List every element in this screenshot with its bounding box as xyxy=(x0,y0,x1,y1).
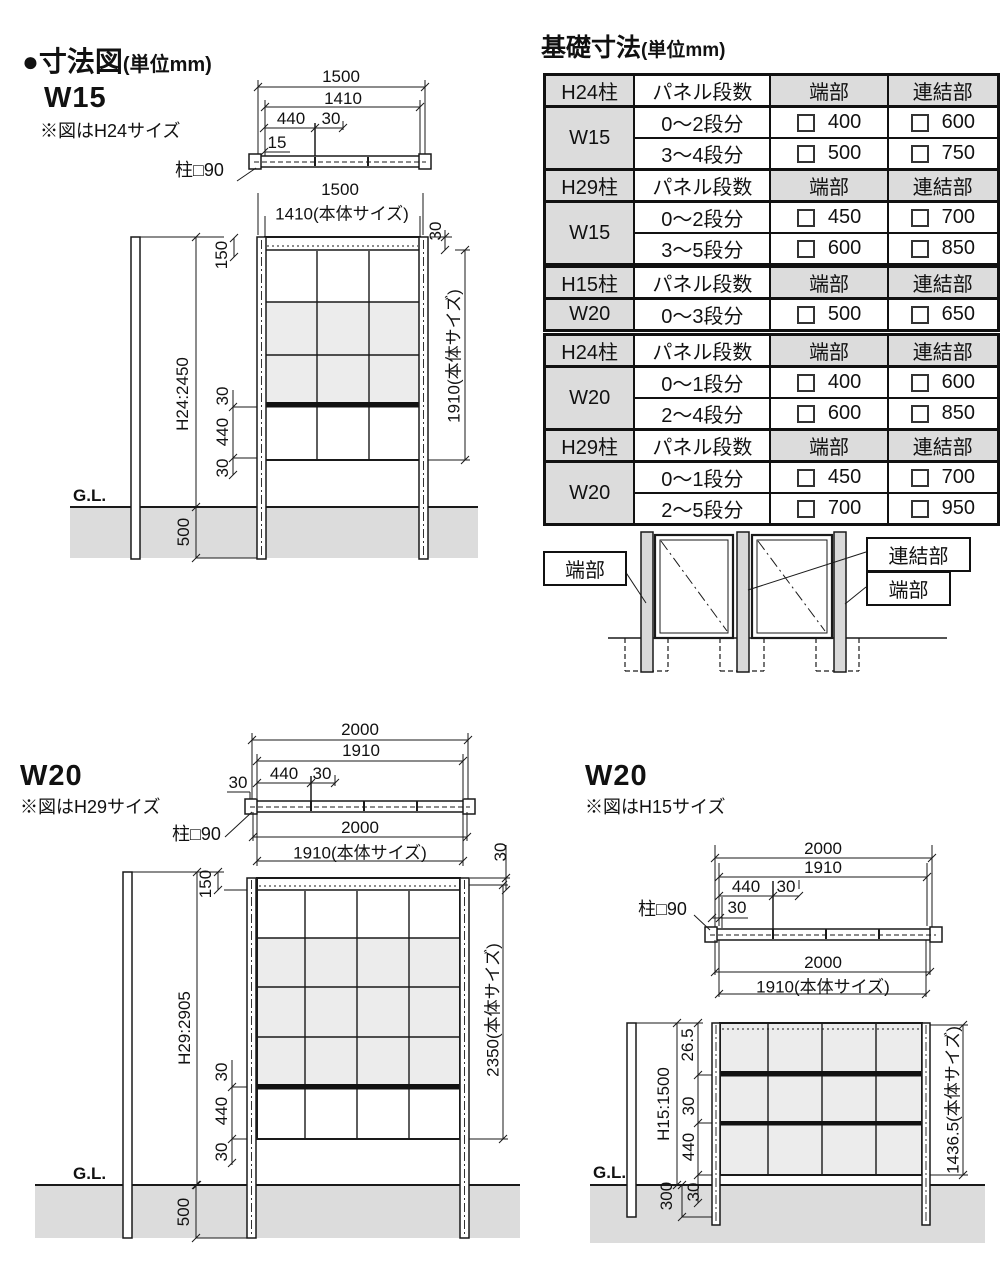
table-row: W20 0〜1段分 450 700 xyxy=(545,462,999,494)
square-symbol-icon xyxy=(911,405,929,423)
dim-top-offset: 30 xyxy=(426,222,446,241)
dimension-drawing-page: ●寸法図(単位mm) W15 ※図はH24サイズ 基礎寸法(単位mm) 1500… xyxy=(0,0,1000,1278)
post-size-label: 柱□90 xyxy=(175,156,224,182)
square-symbol-icon xyxy=(797,469,815,487)
joint-cell: 750 xyxy=(888,138,999,170)
post-size-label: 柱□90 xyxy=(172,820,221,846)
dim-overall: 2000 xyxy=(804,953,842,973)
table-row: W15 0〜2段分 450 700 xyxy=(545,202,999,234)
width-cell: W20 xyxy=(545,299,635,331)
dim-body: 1910 xyxy=(804,858,842,878)
dim-embed: 500 xyxy=(174,518,194,546)
width-cell: W20 xyxy=(545,367,635,430)
dim-panel: 440 xyxy=(270,764,298,784)
dim-rail-bottom: 30 xyxy=(684,1183,704,1202)
end-cell: 450 xyxy=(770,202,887,234)
w15-elevation-linework xyxy=(70,193,478,562)
square-symbol-icon xyxy=(911,114,929,132)
square-symbol-icon xyxy=(797,145,815,163)
reference-post xyxy=(627,1023,636,1217)
dim-body-height: 1910(本体サイズ) xyxy=(440,289,465,423)
end-cell: 600 xyxy=(770,233,887,265)
dim-overall: 1500 xyxy=(322,67,360,87)
square-symbol-icon xyxy=(911,306,929,324)
dim-panel: 440 xyxy=(277,109,305,129)
w20a-name: W20 xyxy=(20,760,83,793)
joint-cell: 600 xyxy=(888,107,999,139)
dim-offset: 30 xyxy=(229,773,248,793)
dim-offset: 30 xyxy=(728,898,747,918)
w20-h29-elevation-linework xyxy=(35,868,520,1242)
table-panel-header: パネル段数 xyxy=(634,267,770,299)
table-panel-header: パネル段数 xyxy=(634,170,770,202)
square-symbol-icon xyxy=(797,374,815,392)
end-cell: 700 xyxy=(770,493,887,525)
table-joint-header: 連結部 xyxy=(888,430,999,462)
table-row: W20 0〜3段分 500 650 xyxy=(545,299,999,331)
steps-cell: 0〜1段分 xyxy=(634,367,770,399)
end-cell: 450 xyxy=(770,462,887,494)
joint-cell: 950 xyxy=(888,493,999,525)
dim-strut: 30 xyxy=(777,877,796,897)
dim-offset: 15 xyxy=(268,133,287,153)
dim-height: H15:1500 xyxy=(654,1067,674,1141)
dim-overall: 2000 xyxy=(341,818,379,838)
dim-overall: 2000 xyxy=(804,839,842,859)
dim-panel-height: 440 xyxy=(679,1133,699,1161)
joint-cell: 850 xyxy=(888,233,999,265)
dim-body-size: 1410(本体サイズ) xyxy=(275,200,409,225)
ground-fill xyxy=(35,1186,520,1238)
w20-h15-elevation-linework xyxy=(590,1019,985,1243)
legend-end-left: 端部 xyxy=(543,551,627,586)
table-panel-header: パネル段数 xyxy=(634,335,770,367)
ground-level-label: G.L. xyxy=(73,486,106,506)
steps-cell: 3〜5段分 xyxy=(634,233,770,265)
steps-cell: 2〜4段分 xyxy=(634,398,770,430)
foundation-table-h29-w20: H29柱 パネル段数 端部 連結部 W20 0〜1段分 450 700 2〜5段… xyxy=(543,428,1000,526)
end-cell: 600 xyxy=(770,398,887,430)
dim-rail-bottom: 30 xyxy=(212,1143,232,1162)
foundation-table-h29-w15: H29柱 パネル段数 端部 連結部 W15 0〜2段分 450 700 3〜5段… xyxy=(543,168,1000,266)
dim-body-size: 1910(本体サイズ) xyxy=(293,839,427,864)
legend-joint: 連結部 xyxy=(866,537,971,572)
square-symbol-icon xyxy=(911,374,929,392)
dim-top-offset: 30 xyxy=(491,843,511,862)
table-joint-header: 連結部 xyxy=(888,335,999,367)
dim-strut: 30 xyxy=(313,764,332,784)
post-size-label: 柱□90 xyxy=(638,895,687,921)
foundation-table-h15-w20: H15柱 パネル段数 端部 連結部 W20 0〜3段分 500 650 xyxy=(543,265,1000,332)
foundation-table-h24-w20: H24柱 パネル段数 端部 連結部 W20 0〜1段分 400 600 2〜4段… xyxy=(543,333,1000,431)
square-symbol-icon xyxy=(911,500,929,518)
dim-top-margin: 26.5 xyxy=(678,1028,698,1061)
w15-note: ※図はH24サイズ xyxy=(40,117,180,143)
table-end-header: 端部 xyxy=(770,75,887,107)
table-end-header: 端部 xyxy=(770,335,887,367)
table-end-header: 端部 xyxy=(770,430,887,462)
dim-overall: 1500 xyxy=(321,180,359,200)
table-row: W20 0〜1段分 400 600 xyxy=(545,367,999,399)
square-symbol-icon xyxy=(797,240,815,258)
dim-panel-height: 440 xyxy=(213,418,233,446)
ground-level-label: G.L. xyxy=(593,1163,626,1183)
dim-embed: 500 xyxy=(174,1198,194,1226)
square-symbol-icon xyxy=(797,306,815,324)
dim-height: H24:2450 xyxy=(173,357,193,431)
steps-cell: 0〜2段分 xyxy=(634,107,770,139)
steps-cell: 2〜5段分 xyxy=(634,493,770,525)
dim-body-height: 1436.5(本体サイズ) xyxy=(939,1026,964,1174)
reference-post xyxy=(131,237,140,559)
dim-rail-top: 30 xyxy=(212,1063,232,1082)
end-cell: 400 xyxy=(770,367,887,399)
dim-panel-height: 440 xyxy=(212,1097,232,1125)
dim-rail-bottom: 30 xyxy=(213,459,233,478)
table-panel-header: パネル段数 xyxy=(634,430,770,462)
square-symbol-icon xyxy=(797,114,815,132)
table-post-header: H15柱 xyxy=(545,267,635,299)
steps-cell: 0〜3段分 xyxy=(634,299,770,331)
table-post-header: H24柱 xyxy=(545,75,635,107)
table-panel-header: パネル段数 xyxy=(634,75,770,107)
joint-cell: 850 xyxy=(888,398,999,430)
width-cell: W15 xyxy=(545,202,635,265)
w20a-note: ※図はH29サイズ xyxy=(20,793,160,819)
dim-top-margin: 150 xyxy=(212,241,232,269)
dim-strut: 30 xyxy=(322,109,341,129)
table-row: W15 0〜2段分 400 600 xyxy=(545,107,999,139)
ground-level-label: G.L. xyxy=(73,1164,106,1184)
dim-overall: 2000 xyxy=(341,720,379,740)
square-symbol-icon xyxy=(797,209,815,227)
square-symbol-icon xyxy=(911,209,929,227)
table-post-header: H29柱 xyxy=(545,430,635,462)
dim-rail-top: 30 xyxy=(679,1097,699,1116)
dim-embed: 300 xyxy=(657,1182,677,1210)
end-cell: 500 xyxy=(770,299,887,331)
dim-height: H29:2905 xyxy=(175,991,195,1065)
dim-rail-top: 30 xyxy=(213,387,233,406)
dim-body: 1410 xyxy=(324,89,362,109)
w20b-note: ※図はH15サイズ xyxy=(585,793,725,819)
joint-cell: 600 xyxy=(888,367,999,399)
steps-cell: 3〜4段分 xyxy=(634,138,770,170)
joint-cell: 700 xyxy=(888,462,999,494)
square-symbol-icon xyxy=(911,145,929,163)
square-symbol-icon xyxy=(911,240,929,258)
joint-cell: 700 xyxy=(888,202,999,234)
dim-panel: 440 xyxy=(732,877,760,897)
foundation-table-h24-w15: H24柱 パネル段数 端部 連結部 W15 0〜2段分 400 600 3〜4段… xyxy=(543,73,1000,171)
page-title-unit: (単位mm) xyxy=(123,54,212,76)
w15-name: W15 xyxy=(44,82,107,115)
dim-body-height: 2350(本体サイズ) xyxy=(479,943,504,1077)
w20b-name: W20 xyxy=(585,760,648,793)
table-joint-header: 連結部 xyxy=(888,170,999,202)
legend-end-right: 端部 xyxy=(866,571,951,606)
dim-body: 1910 xyxy=(342,741,380,761)
dim-body-size: 1910(本体サイズ) xyxy=(756,973,890,998)
square-symbol-icon xyxy=(797,500,815,518)
steps-cell: 0〜2段分 xyxy=(634,202,770,234)
foundation-title-unit: (単位mm) xyxy=(641,40,725,61)
table-end-header: 端部 xyxy=(770,170,887,202)
reference-post xyxy=(123,872,132,1238)
end-cell: 500 xyxy=(770,138,887,170)
dim-top-margin: 150 xyxy=(196,870,216,898)
table-post-header: H24柱 xyxy=(545,335,635,367)
width-cell: W15 xyxy=(545,107,635,170)
joint-cell: 650 xyxy=(888,299,999,331)
end-cell: 400 xyxy=(770,107,887,139)
square-symbol-icon xyxy=(797,405,815,423)
page-title: ●寸法図(単位mm) xyxy=(22,40,212,80)
table-joint-header: 連結部 xyxy=(888,267,999,299)
table-post-header: H29柱 xyxy=(545,170,635,202)
square-symbol-icon xyxy=(911,469,929,487)
steps-cell: 0〜1段分 xyxy=(634,462,770,494)
table-end-header: 端部 xyxy=(770,267,887,299)
foundation-title: 基礎寸法(単位mm) xyxy=(541,28,725,64)
table-joint-header: 連結部 xyxy=(888,75,999,107)
width-cell: W20 xyxy=(545,462,635,525)
